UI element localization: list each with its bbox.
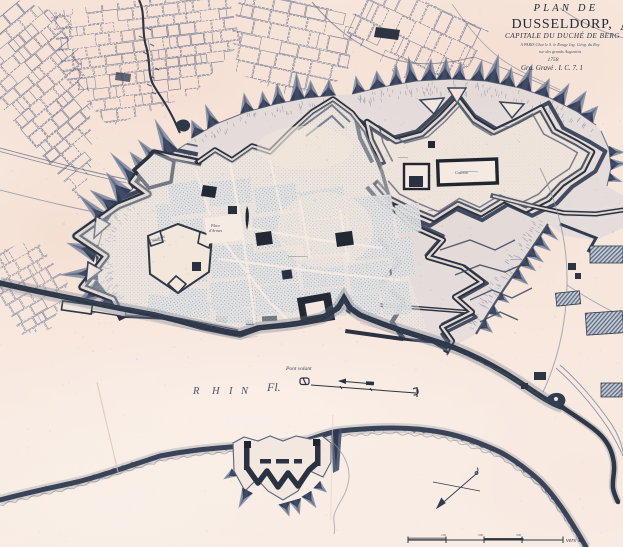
svg-text:1758: 1758 bbox=[548, 57, 559, 63]
svg-text:Pont volant: Pont volant bbox=[285, 366, 312, 372]
svg-text:200: 200 bbox=[478, 533, 484, 537]
svg-text:N: N bbox=[240, 386, 249, 397]
svg-text:R: R bbox=[192, 386, 200, 397]
svg-text:DUSSELDORP,: DUSSELDORP, bbox=[512, 17, 613, 32]
svg-text:vers To.: vers To. bbox=[566, 538, 585, 544]
svg-text:A PARIS Chez le S. le Rouge In: A PARIS Chez le S. le Rouge Ing. Géog. d… bbox=[519, 42, 599, 47]
svg-text:300: 300 bbox=[516, 533, 522, 537]
svg-text:CAPITALE DU DUCHÉ DE BERG: CAPITALE DU DUCHÉ DE BERG bbox=[505, 30, 620, 40]
svg-text:Fl.: Fl. bbox=[266, 380, 281, 394]
svg-text:Caserne: Caserne bbox=[455, 170, 469, 175]
svg-text:H: H bbox=[211, 386, 221, 397]
svg-text:d'Armes: d'Armes bbox=[209, 228, 223, 233]
svg-text:PLAN DE: PLAN DE bbox=[533, 3, 599, 14]
svg-text:rue des grands Augustins: rue des grands Augustins bbox=[539, 49, 582, 54]
svg-text:I: I bbox=[228, 386, 233, 397]
svg-text:100: 100 bbox=[441, 533, 447, 537]
svg-text:Gra. Gravé . I. C. 7. 1: Gra. Gravé . I. C. 7. 1 bbox=[521, 64, 583, 72]
